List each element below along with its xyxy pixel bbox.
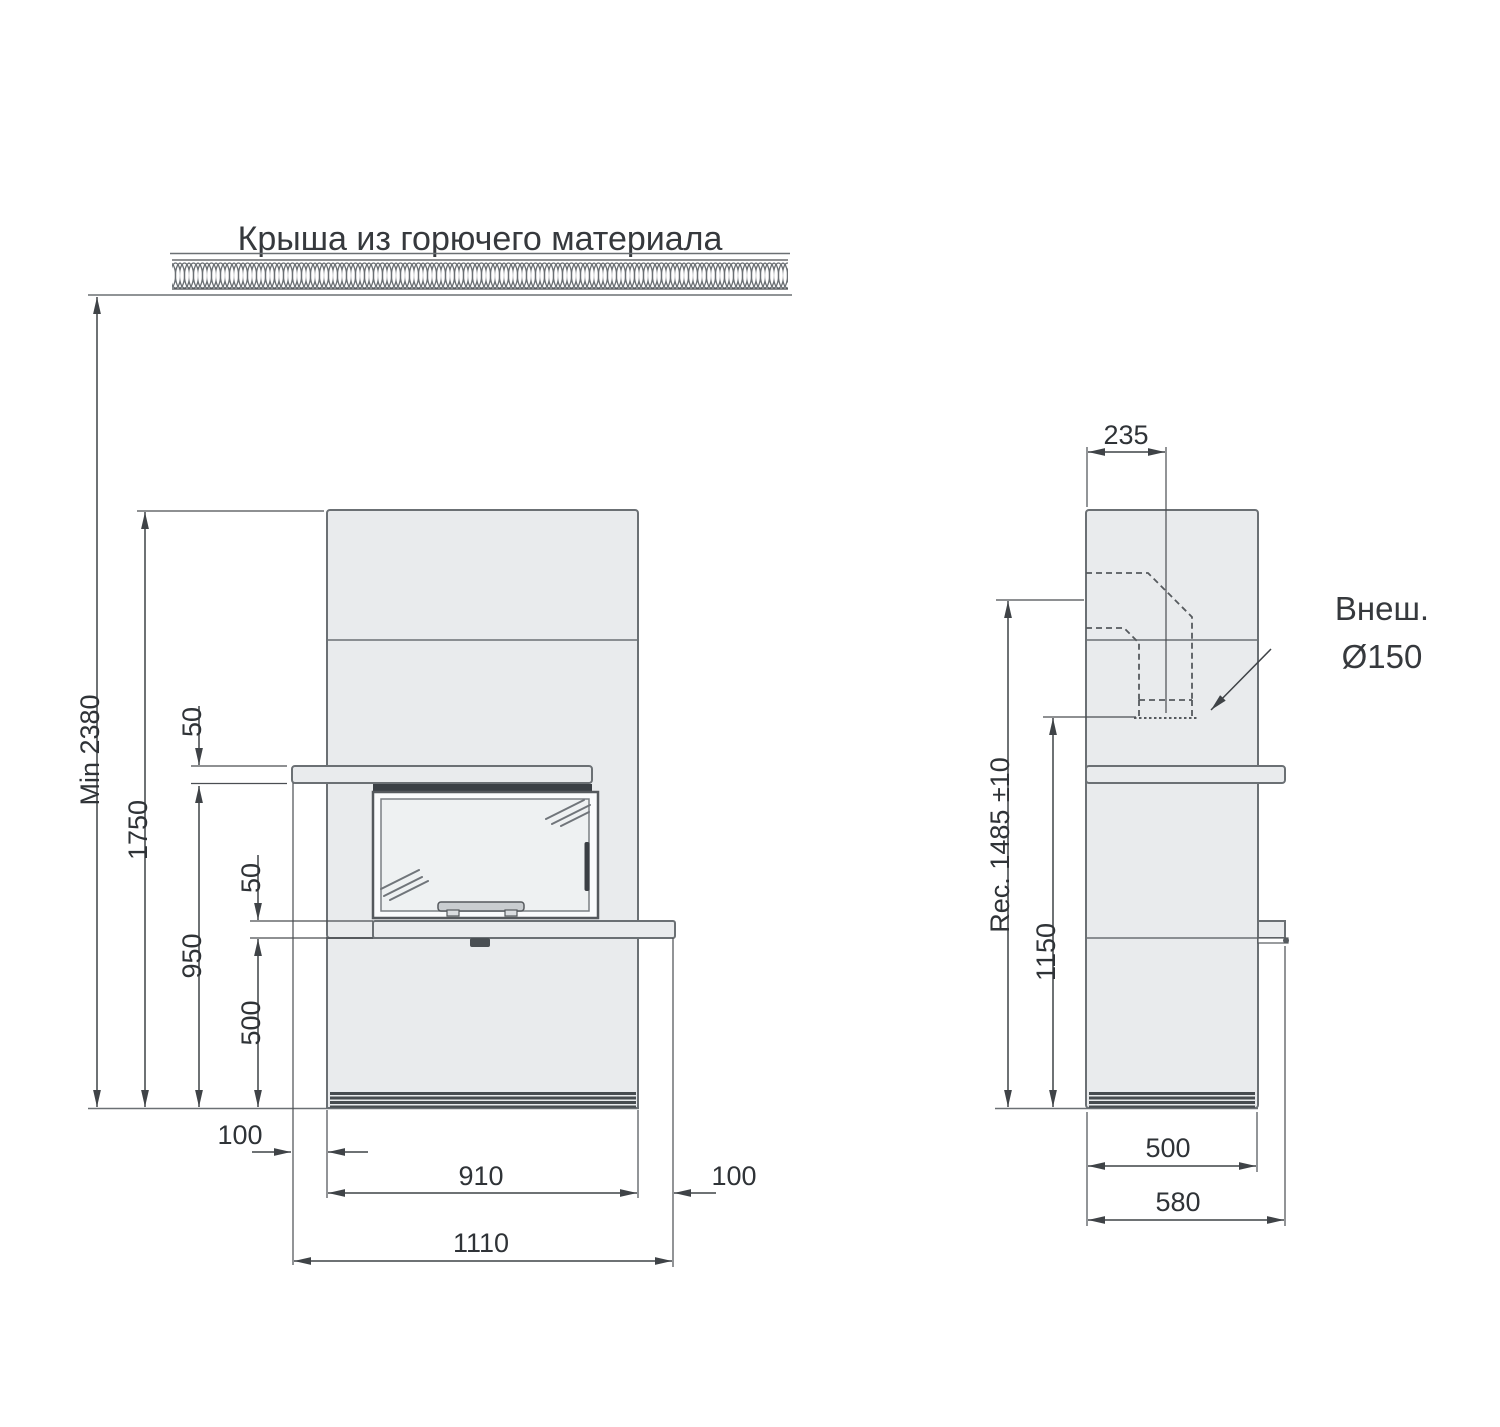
dim-label-580: 580 [1155, 1187, 1200, 1217]
dim-label-50-mid: 50 [236, 863, 266, 893]
dim-mantel-thickness: 50 [177, 706, 287, 784]
dim-body-width: 910 [328, 1161, 637, 1193]
handle-bracket-left [447, 910, 459, 916]
dim-mantel-underside-height: 950 [177, 786, 207, 1107]
flue-label-line1: Внеш. [1335, 590, 1429, 627]
mantel-shelf-front [292, 766, 592, 783]
dim-label-50-top: 50 [177, 707, 207, 737]
dim-label-min-2380: Min 2380 [75, 694, 105, 805]
front-view [88, 510, 675, 1109]
dim-label-1750: 1750 [123, 800, 153, 860]
dim-flue-offset: 235 [1087, 420, 1165, 507]
dim-recommended-flue-height: Rec. 1485 ±10 [985, 600, 1084, 1107]
roof-material-label: Крыша из горючего материала [238, 220, 723, 258]
hearth-shelf-front [373, 921, 675, 938]
side-body [1086, 510, 1258, 1108]
side-view [995, 447, 1289, 1109]
dim-label-910: 910 [458, 1161, 503, 1191]
dim-right-overhang: 100 [674, 1161, 757, 1193]
door-latch-rod [585, 842, 590, 891]
mantel-shelf-side [1086, 766, 1285, 783]
dim-total-width: 1110 [294, 1228, 672, 1261]
fireplace-installation-drawing: Крыша из горючего материала [0, 0, 1500, 1427]
dim-label-950: 950 [177, 933, 207, 978]
handle-bracket-right [505, 910, 517, 916]
dim-label-235: 235 [1103, 420, 1148, 450]
flue-label-line2: Ø150 [1342, 638, 1423, 675]
firebox-glass [381, 799, 589, 911]
dim-body-height: 1750 [123, 511, 324, 1107]
damper-control [470, 938, 490, 947]
technical-drawing-page: Крыша из горючего материала [0, 0, 1500, 1427]
dim-label-500-side: 500 [1145, 1133, 1190, 1163]
dim-label-500-front: 500 [236, 1000, 266, 1045]
dim-base-height: 500 [236, 939, 266, 1107]
ceiling-section: Крыша из горючего материала [88, 220, 792, 295]
front-body-base [327, 938, 638, 1108]
ceiling-hatch-strip [88, 254, 792, 296]
dim-min-ceiling-height: Min 2380 [75, 297, 105, 1107]
firebox [373, 784, 598, 918]
dim-label-1110: 1110 [453, 1228, 509, 1258]
hearth-shelf-side [1258, 921, 1285, 938]
dim-label-100-left: 100 [217, 1120, 262, 1150]
dim-label-1150: 1150 [1031, 923, 1061, 981]
hearth-lip-end [1283, 938, 1289, 944]
dim-label-100-right: 100 [711, 1161, 756, 1191]
dim-label-rec-1485: Rec. 1485 ±10 [985, 757, 1015, 932]
